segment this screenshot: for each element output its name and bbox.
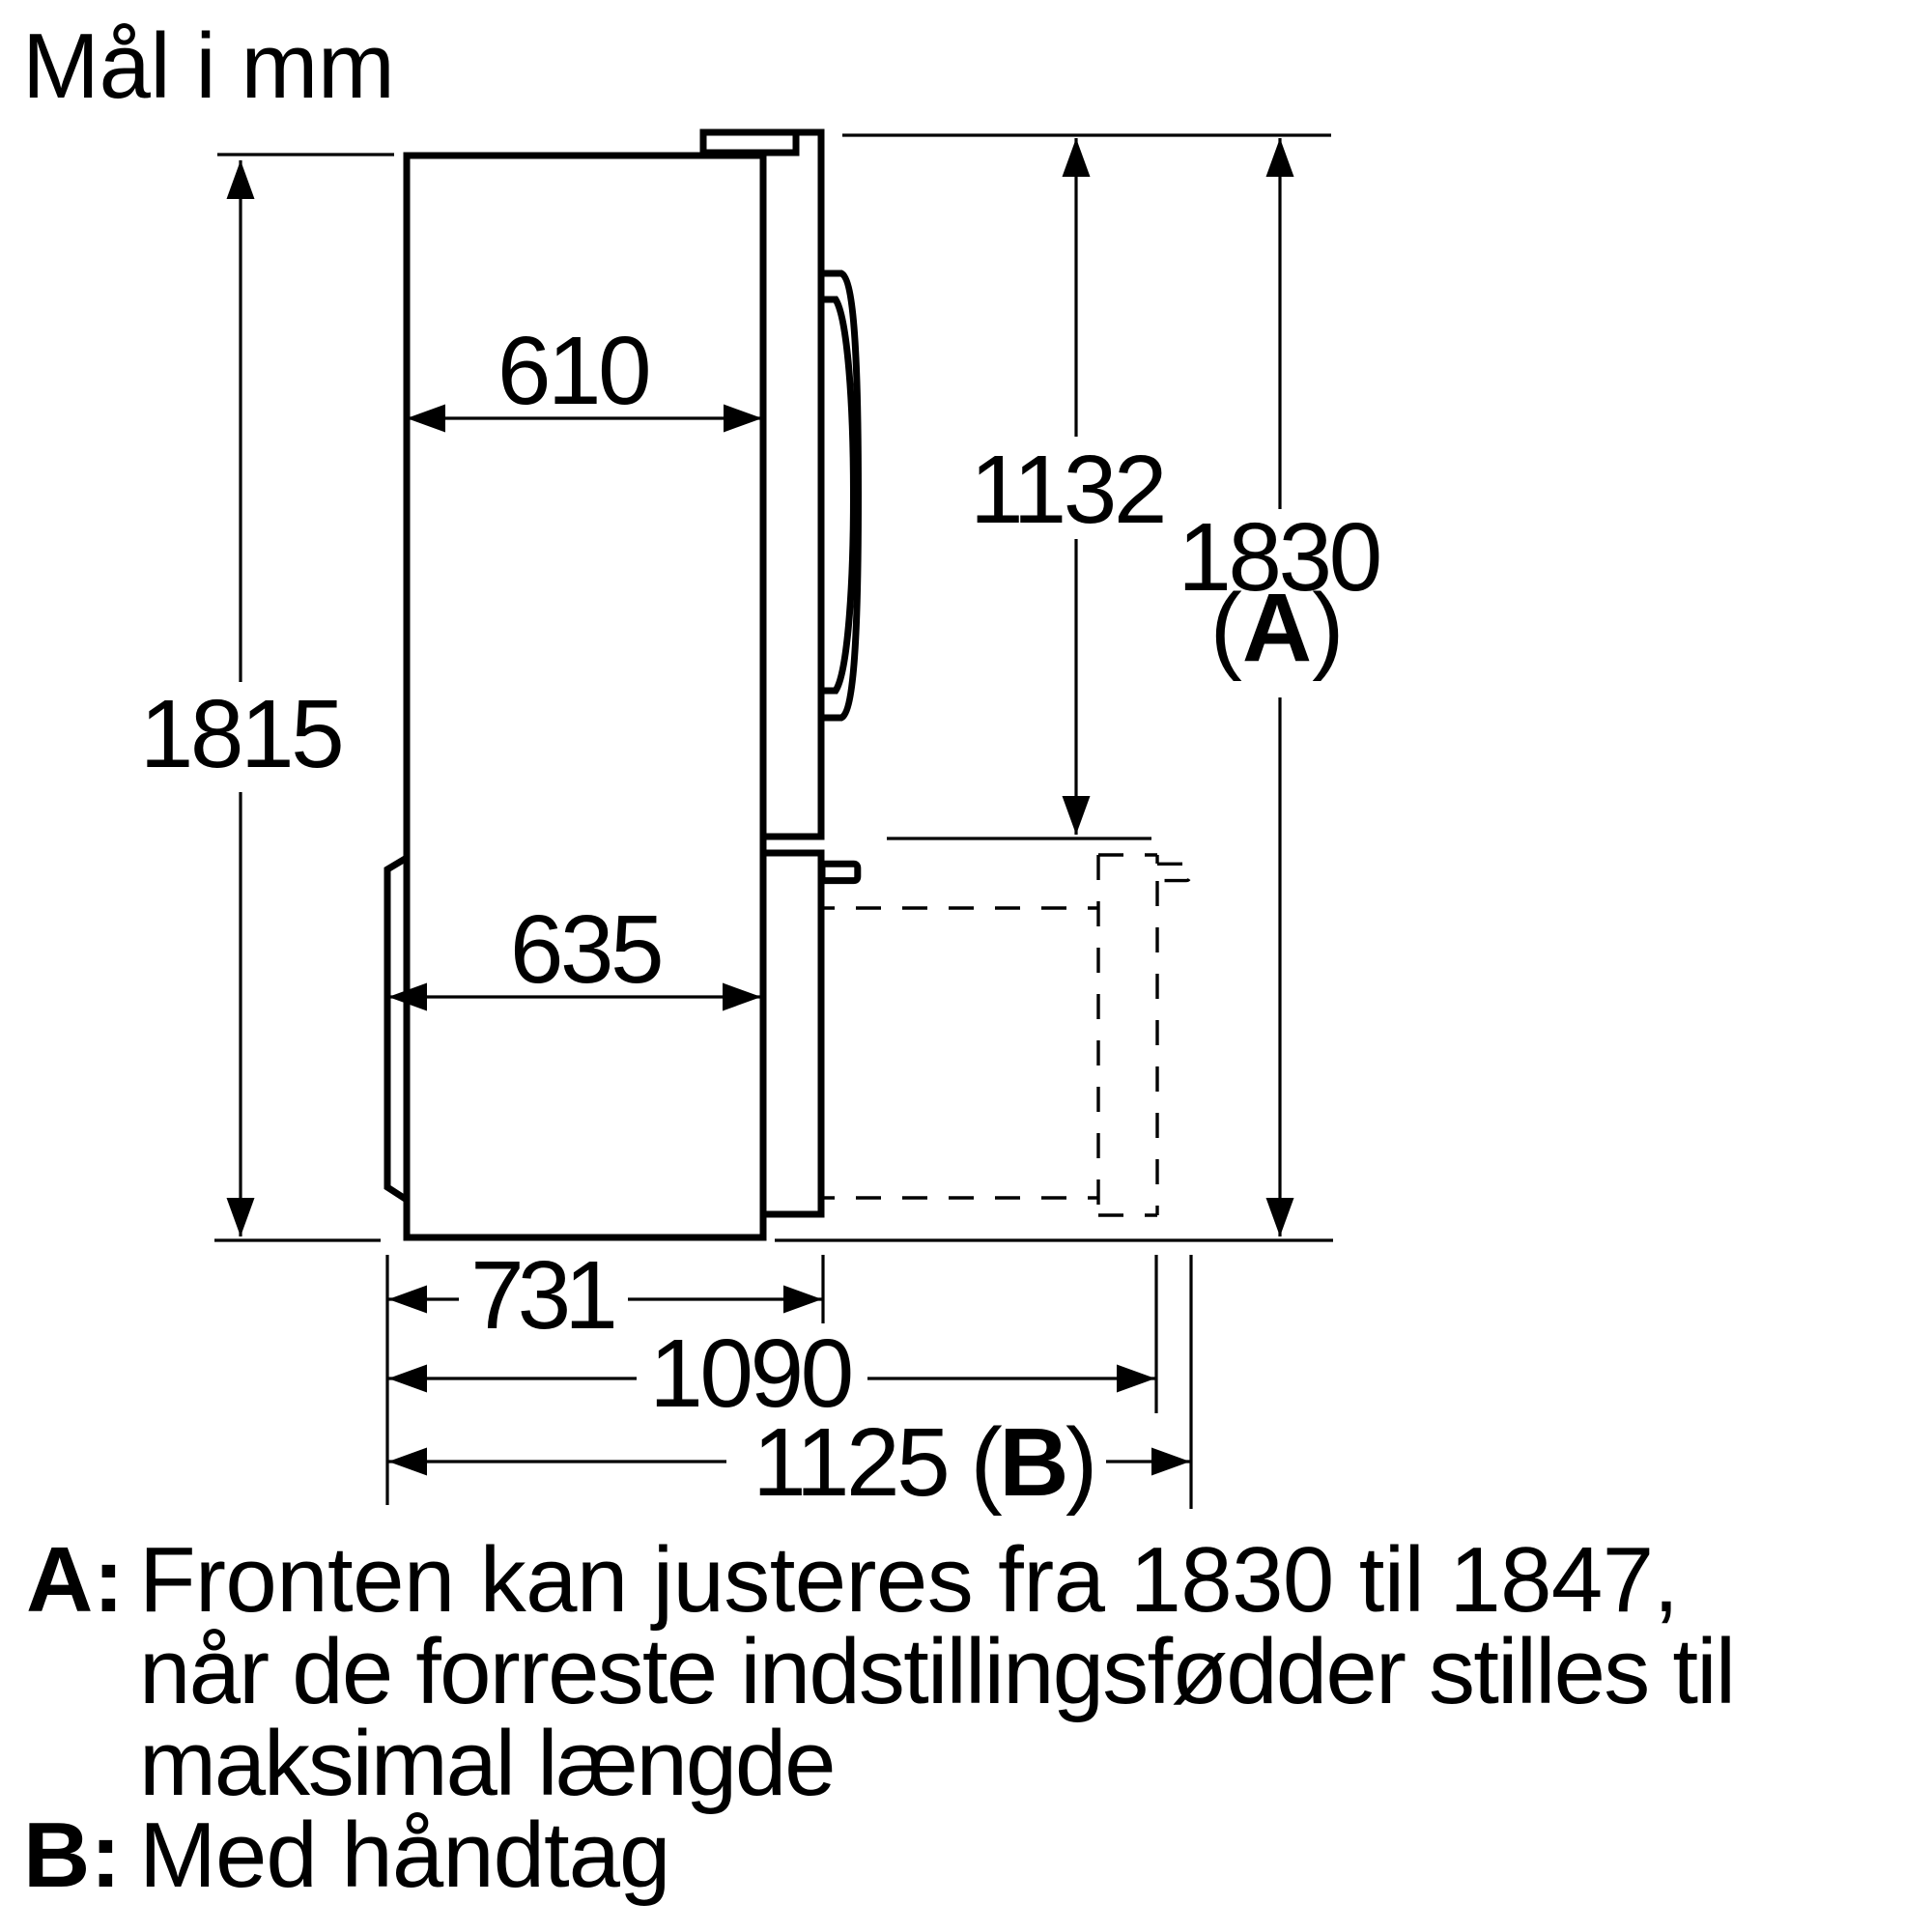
svg-text:1125 (B): 1125 (B) [753, 1408, 1094, 1517]
svg-text:(A): (A) [1210, 574, 1345, 682]
svg-text:635: 635 [510, 895, 661, 1004]
svg-text:Fronten kan justeres fra 1830: Fronten kan justeres fra 1830 til 1847, [139, 1528, 1679, 1632]
svg-text:A:: A: [26, 1528, 124, 1632]
svg-text:Med håndtag: Med håndtag [139, 1804, 669, 1907]
svg-text:Mål i mm: Mål i mm [22, 14, 394, 118]
svg-text:B:: B: [23, 1804, 121, 1907]
svg-text:maksimal længde: maksimal længde [139, 1712, 834, 1815]
svg-text:når de forreste indstillingsfø: når de forreste indstillingsfødder still… [139, 1620, 1734, 1723]
svg-text:1132: 1132 [970, 436, 1164, 544]
svg-text:610: 610 [497, 317, 648, 425]
svg-text:1815: 1815 [140, 680, 341, 788]
svg-text:731: 731 [470, 1241, 613, 1350]
